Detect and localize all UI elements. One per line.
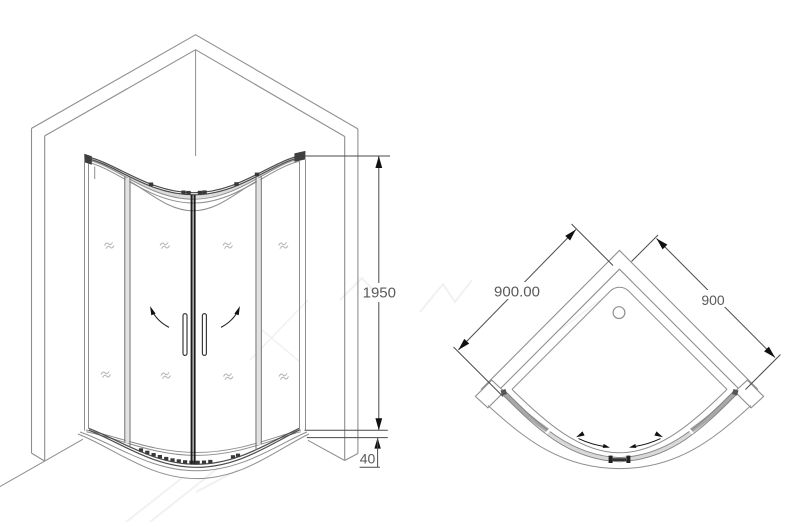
svg-text:1950: 1950	[363, 285, 396, 302]
svg-text:900: 900	[701, 292, 725, 308]
svg-text:40: 40	[360, 450, 376, 466]
svg-text:900.00: 900.00	[494, 284, 540, 301]
